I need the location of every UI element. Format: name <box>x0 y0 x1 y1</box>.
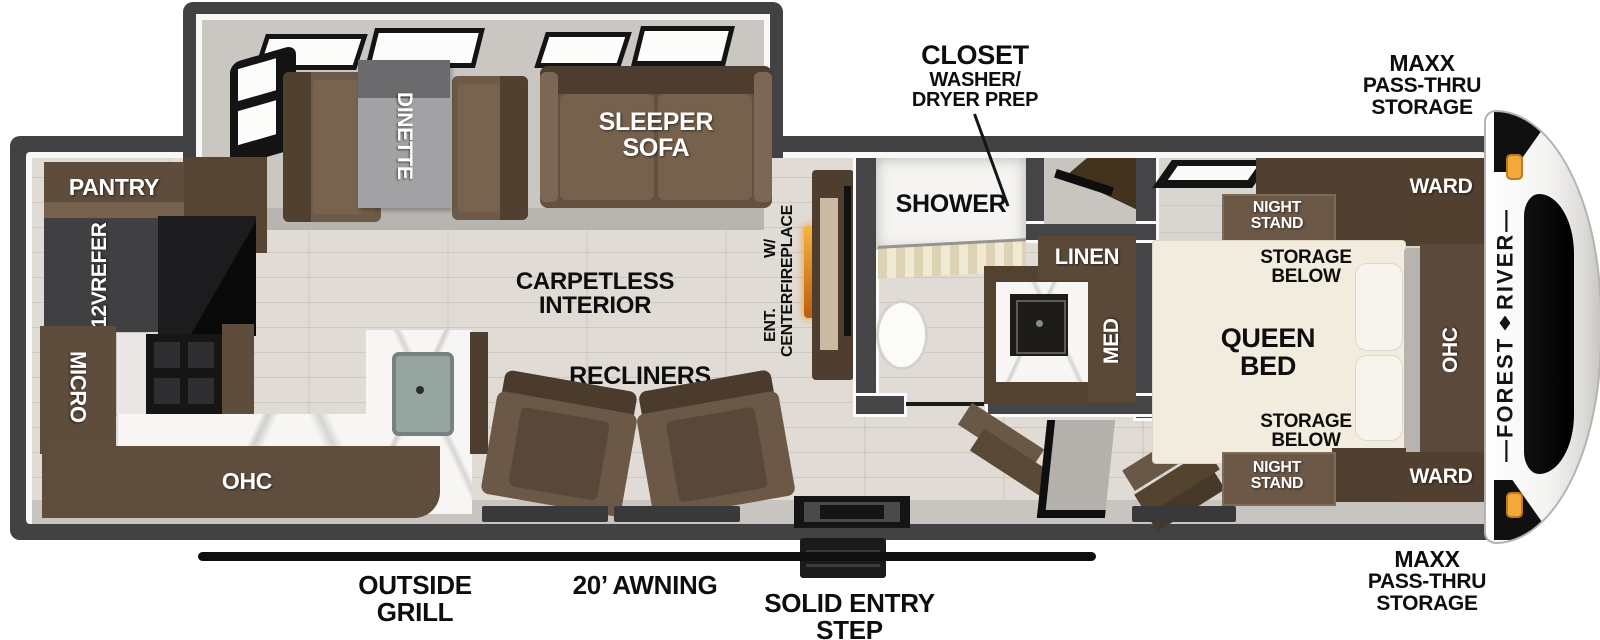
bedroom-ohc: OHC <box>1420 244 1486 456</box>
closet-callout-label: CLOSET WASHER/ DRYER PREP <box>895 42 1055 110</box>
dinette-bench-right <box>452 76 528 220</box>
bath-wall-left <box>856 158 876 408</box>
outside-grill-label: OUTSIDEGRILL <box>330 572 500 625</box>
marker-light-icon <box>1506 154 1523 180</box>
night-stand-top-label: NIGHTSTAND <box>1224 200 1330 233</box>
storage-hatch <box>614 506 740 522</box>
pillow-icon <box>1355 355 1403 441</box>
awning-line <box>198 552 1096 561</box>
refer-label: 12VREFER <box>50 222 150 328</box>
entry-door <box>794 496 910 528</box>
kitchen-ohc: OHC <box>42 446 440 518</box>
island-side-panel <box>470 332 488 454</box>
forest-river-logo-icon <box>1500 316 1511 331</box>
storage-below-bottom-label: STORAGEBELOW <box>1250 412 1362 451</box>
brand-wordmark: —FORESTRIVER— <box>1488 190 1522 480</box>
storage-hatch <box>1132 506 1236 522</box>
entry-step-label: SOLID ENTRYSTEP <box>762 590 937 640</box>
dinette-label: DINETTE <box>358 66 450 206</box>
ward-bottom: WARD <box>1396 452 1486 502</box>
slideout-window-2-icon <box>540 24 730 70</box>
pantry-label: PANTRY <box>44 176 184 199</box>
queen-bed-label: QUEENBED <box>1193 325 1343 380</box>
maxx-storage-bottom-label: MAXX PASS-THRU STORAGE <box>1352 548 1502 614</box>
entertainment-center <box>812 170 854 380</box>
toilet-icon <box>876 300 928 370</box>
ent-center-label: ENT. CENTERW/ FIREPLACE <box>758 206 802 356</box>
kitchen-ohc-label: OHC <box>172 470 322 493</box>
ward-top: WARD <box>1396 158 1486 246</box>
recliner-left <box>480 369 642 518</box>
pantry: PANTRY <box>44 162 184 218</box>
night-stand-top: NIGHTSTAND <box>1222 194 1336 246</box>
bath-wall-bottom-a <box>856 396 904 414</box>
bedroom-bottom-cabinets <box>1332 448 1406 502</box>
med-cabinet: MED <box>1088 280 1136 402</box>
maxx-storage-top-label: MAXX PASS-THRU STORAGE <box>1352 52 1492 118</box>
pillow-icon <box>1355 263 1403 351</box>
vanity-sink-icon <box>1010 294 1068 356</box>
kitchen-sink-icon <box>392 352 454 436</box>
marker-light-icon <box>1506 492 1523 518</box>
refrigerator: 12VREFER <box>44 218 158 332</box>
dinette-table: DINETTE <box>358 60 450 208</box>
carpetless-interior-label: CARPETLESSINTERIOR <box>495 270 695 319</box>
storage-below-top-label: STORAGEBELOW <box>1250 248 1362 287</box>
shower-room: SHOWER <box>876 158 1026 250</box>
ward-bottom-label: WARD <box>1396 466 1486 487</box>
ward-top-label: WARD <box>1396 176 1486 197</box>
cabinet-by-stove <box>222 324 254 420</box>
sleeper-sofa-label: SLEEPERSOFA <box>540 110 772 161</box>
night-stand-bottom-label: NIGHTSTAND <box>1224 460 1330 493</box>
rv-floorplan: DINETTE SLEEPERSOFA PANTRY 12VREFER MICR… <box>0 0 1600 640</box>
sleeper-sofa: SLEEPERSOFA <box>540 66 772 208</box>
med-label: MED <box>1096 288 1128 394</box>
storage-hatch <box>482 506 608 522</box>
linen-label: LINEN <box>1038 246 1136 268</box>
oven <box>116 332 148 416</box>
bedroom-window-icon <box>1152 160 1272 188</box>
refrigerator-doors <box>158 216 256 336</box>
micro-cabinet: MICRO <box>40 326 116 454</box>
front-cap: —FORESTRIVER— <box>1484 110 1600 544</box>
cooktop <box>146 334 222 414</box>
recliner-right <box>632 368 796 519</box>
hall-partition <box>1037 420 1115 518</box>
awning-label: 20’ AWNING <box>560 572 730 599</box>
night-stand-bottom: NIGHTSTAND <box>1222 452 1336 506</box>
linen-cabinet: LINEN <box>1038 236 1136 280</box>
bath-wall-shower-closet <box>1026 158 1044 232</box>
micro-label: MICRO <box>58 332 98 442</box>
cap-windshield-decal <box>1524 194 1574 474</box>
bedroom-ohc-label: OHC <box>1434 290 1468 410</box>
